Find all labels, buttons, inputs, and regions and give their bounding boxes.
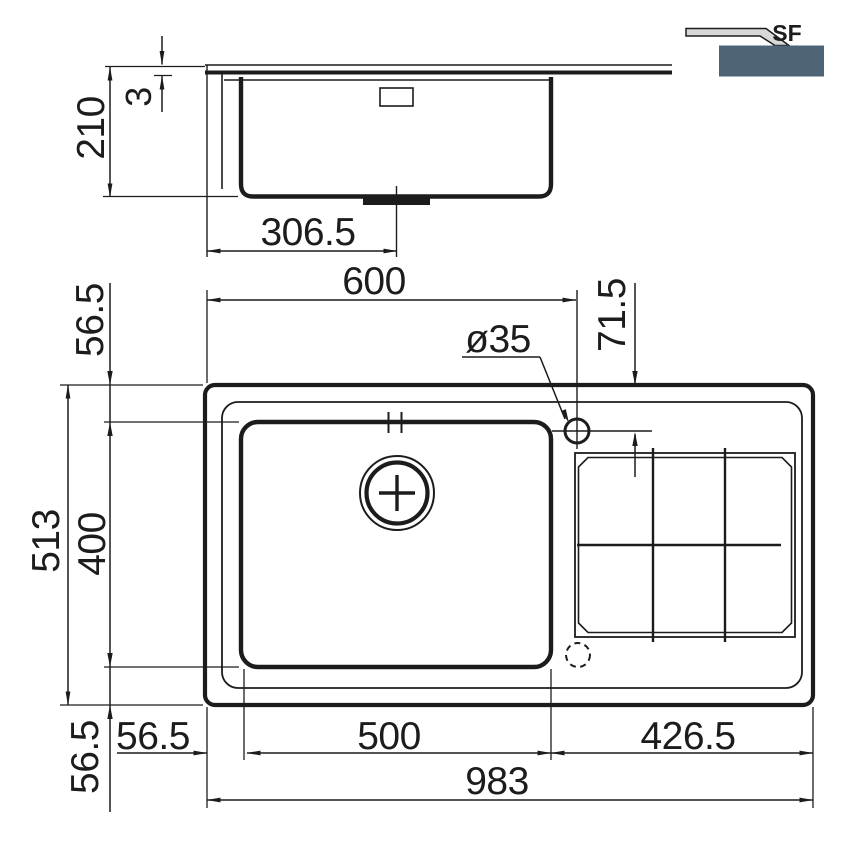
arrowhead (107, 371, 112, 385)
dim-label-bowl-width: 500 (357, 715, 421, 758)
dim-rim-thickness: 3 (118, 36, 172, 112)
arrowhead (561, 409, 569, 423)
drainboard (575, 448, 795, 642)
knob-hole-dashed (566, 643, 590, 667)
dim-label-rim-to-bowl-top: 56.5 (69, 283, 112, 357)
dim-rim-to-tap: 71.5 (591, 278, 638, 477)
arrowhead (107, 705, 112, 719)
sink-technical-drawing: 210 3 306.5 SF (0, 0, 850, 850)
mounting-type-label: SF (772, 20, 801, 46)
drawing-svg: 210 3 306.5 SF (0, 0, 850, 850)
dim-row-bottom: 56.5 500 426.5 983 (116, 669, 813, 808)
dim-label-overall-height: 210 (70, 96, 113, 160)
callout-tap-diameter: ø35 (462, 318, 569, 423)
overflow-opening (380, 88, 413, 106)
dim-overall-height: 210 (70, 67, 238, 198)
bowl-outline (241, 422, 551, 667)
dim-label-rim-thickness: 3 (118, 87, 159, 107)
arrowhead (107, 653, 112, 667)
dim-overall-depth: 513 (25, 385, 203, 705)
logo-panel (719, 46, 824, 77)
bowl-section (241, 77, 551, 197)
side-view: 210 3 306.5 (70, 36, 672, 257)
dim-label-edge-to-tap: 600 (342, 260, 406, 303)
dim-drain-offset: 306.5 (207, 211, 397, 254)
dim-label-tap-diameter: ø35 (465, 318, 531, 361)
dim-label-overall-depth: 513 (25, 509, 68, 573)
mounting-type-logo: SF (686, 20, 824, 77)
arrowhead (632, 432, 637, 446)
leader-line (540, 357, 565, 419)
plan-view: 600 56.5 400 56.5 513 (25, 260, 813, 812)
dim-label-bowl-depth: 400 (71, 512, 114, 576)
dim-label-overall-width: 983 (465, 760, 529, 803)
dim-label-rim-to-tap: 71.5 (591, 278, 634, 352)
dim-label-drainer-width: 426.5 (640, 715, 735, 758)
dim-label-drain-offset: 306.5 (260, 211, 355, 254)
dim-chain-left: 56.5 400 56.5 (64, 283, 114, 812)
dim-label-bowl-to-bottom-edge: 56.5 (64, 720, 107, 794)
dim-label-edge-to-bowl-left: 56.5 (116, 715, 190, 758)
arrowhead (107, 422, 112, 436)
